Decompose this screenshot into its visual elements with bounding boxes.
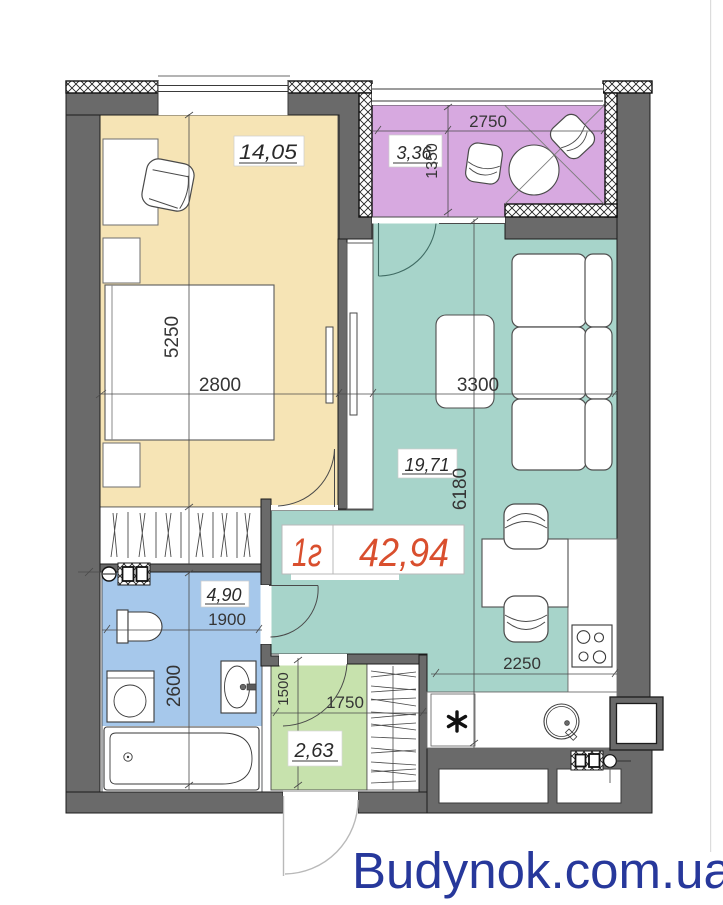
svg-text:1900: 1900: [208, 610, 246, 629]
svg-text:2800: 2800: [199, 375, 241, 396]
svg-text:6180: 6180: [450, 468, 471, 510]
svg-text:5250: 5250: [162, 316, 183, 358]
svg-text:42,94: 42,94: [359, 531, 449, 575]
svg-text:1350: 1350: [424, 143, 441, 179]
svg-text:4,90: 4,90: [206, 585, 241, 605]
svg-text:2,63: 2,63: [294, 740, 334, 762]
svg-text:14,05: 14,05: [239, 141, 297, 164]
svg-text:2250: 2250: [503, 654, 541, 673]
svg-text:19,71: 19,71: [404, 455, 449, 475]
svg-text:1500: 1500: [275, 672, 292, 705]
svg-text:1750: 1750: [326, 693, 364, 712]
svg-text:2750: 2750: [469, 112, 507, 131]
svg-text:3300: 3300: [457, 375, 499, 396]
svg-text:1г: 1г: [292, 531, 322, 575]
svg-text:Budynok.com.ua: Budynok.com.ua: [352, 842, 723, 899]
svg-text:2600: 2600: [164, 665, 185, 707]
